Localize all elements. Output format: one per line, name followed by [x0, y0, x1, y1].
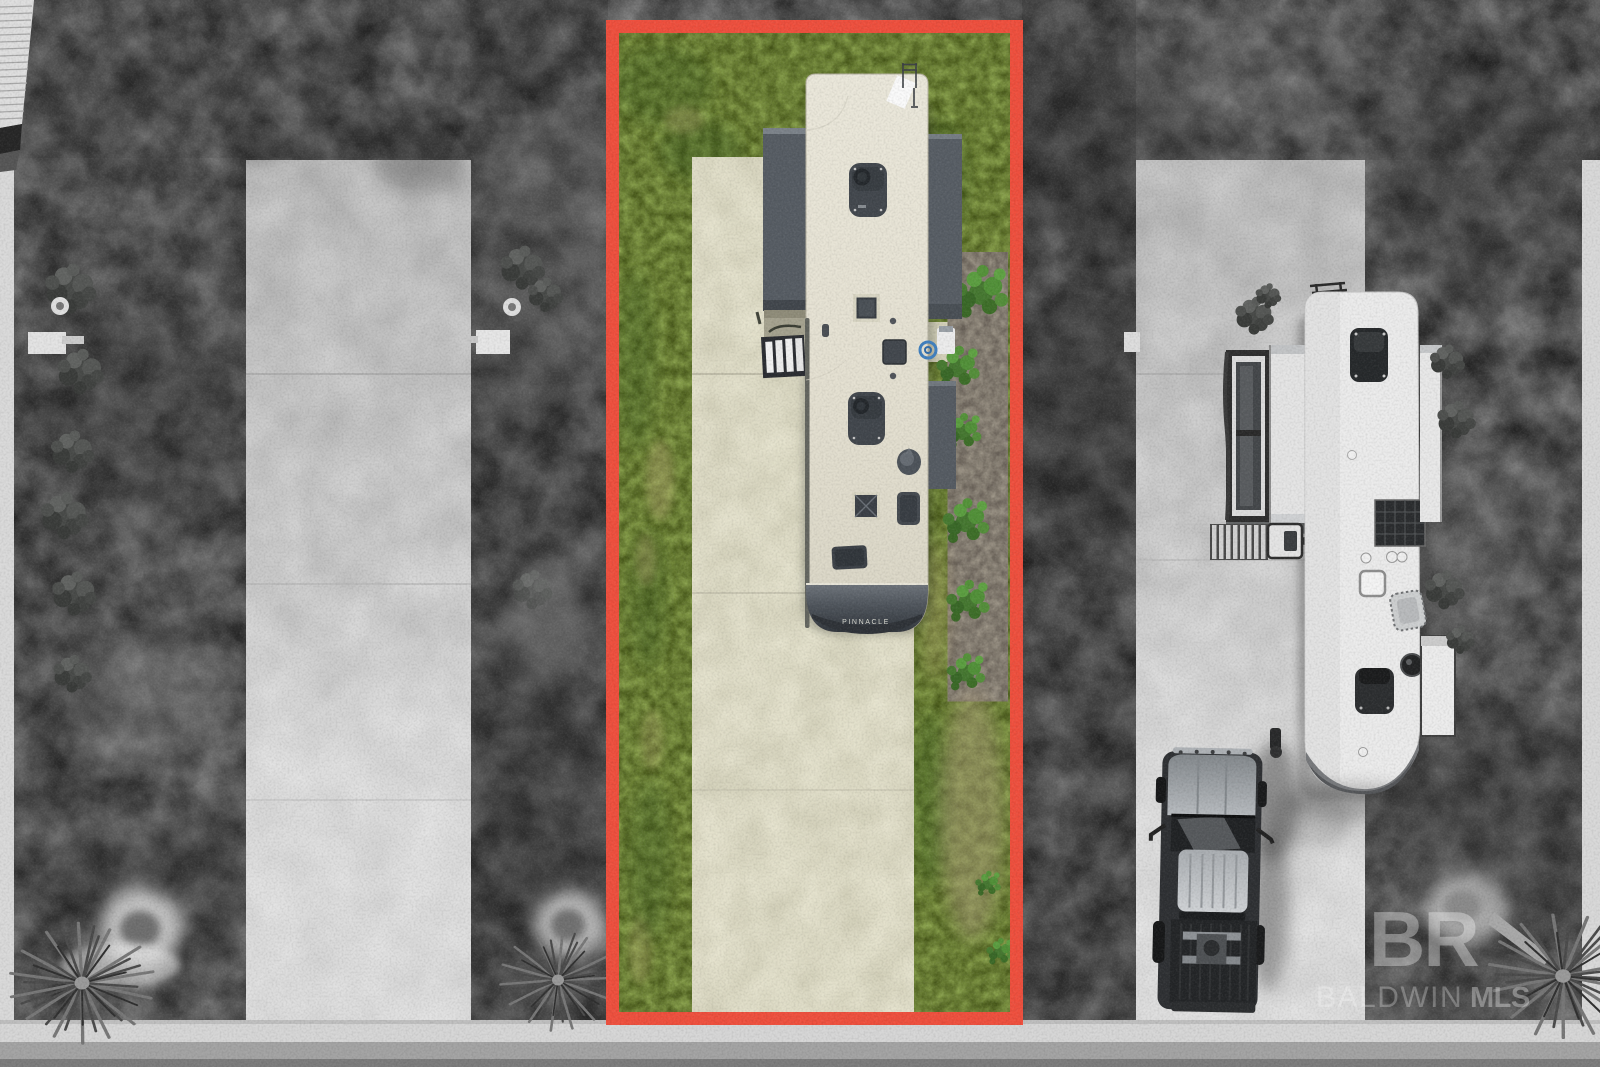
svg-text:BALDWIN: BALDWIN — [1316, 981, 1463, 1014]
svg-text:BR: BR — [1369, 895, 1478, 983]
svg-text:MLS: MLS — [1470, 982, 1530, 1014]
